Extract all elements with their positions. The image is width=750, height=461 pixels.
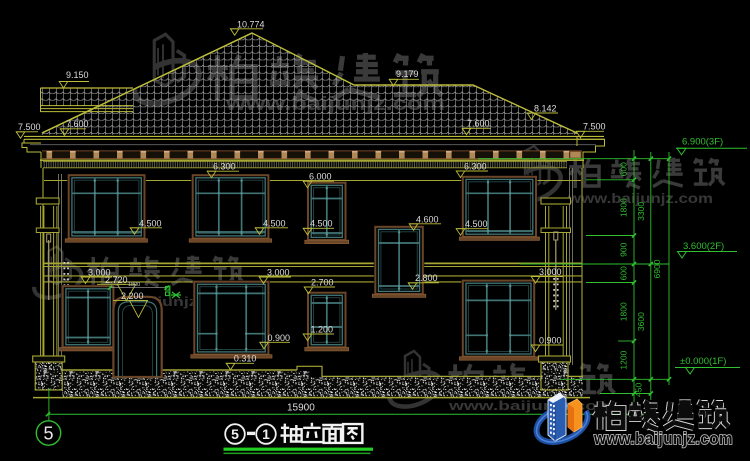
svg-text:1.200: 1.200 xyxy=(311,325,334,335)
svg-text:600: 600 xyxy=(619,266,629,280)
svg-text:8.142: 8.142 xyxy=(534,104,557,114)
svg-text:3600: 3600 xyxy=(636,312,646,331)
svg-text:4.500: 4.500 xyxy=(263,219,286,229)
svg-text:1: 1 xyxy=(262,426,270,442)
svg-text:0.900: 0.900 xyxy=(268,333,291,343)
svg-text:www.baijunjz.com: www.baijunjz.com xyxy=(593,429,733,448)
svg-text:900: 900 xyxy=(619,242,629,256)
svg-text:2.800: 2.800 xyxy=(415,273,438,283)
svg-text:6.300: 6.300 xyxy=(213,162,236,172)
svg-text:1800: 1800 xyxy=(619,198,629,217)
svg-text:±0.000(1F): ±0.000(1F) xyxy=(680,356,726,367)
svg-text:10.774: 10.774 xyxy=(237,20,265,30)
svg-text:6.000: 6.000 xyxy=(309,172,332,182)
svg-text:2.200: 2.200 xyxy=(121,291,144,301)
svg-text:6900: 6900 xyxy=(652,259,662,278)
svg-text:9.179: 9.179 xyxy=(396,69,419,79)
svg-text:1200: 1200 xyxy=(619,350,629,369)
svg-text:4.500: 4.500 xyxy=(139,219,162,229)
svg-text:600: 600 xyxy=(619,162,629,176)
svg-text:4.500: 4.500 xyxy=(465,219,488,229)
svg-text:3.600(2F): 3.600(2F) xyxy=(683,241,724,252)
svg-text:4.500: 4.500 xyxy=(310,219,333,229)
svg-text:7.500: 7.500 xyxy=(18,122,41,132)
svg-text:5: 5 xyxy=(43,424,53,444)
svg-text:4.600: 4.600 xyxy=(416,214,439,224)
svg-text:15900: 15900 xyxy=(287,403,315,414)
svg-text:1800: 1800 xyxy=(619,302,629,321)
svg-text:3300: 3300 xyxy=(636,202,646,221)
svg-text:( ): ( ) xyxy=(698,411,707,418)
svg-text:6.300: 6.300 xyxy=(464,161,487,171)
svg-text:1800: 1800 xyxy=(128,282,140,288)
svg-text:3.000: 3.000 xyxy=(539,267,562,277)
svg-text:2.700: 2.700 xyxy=(311,277,334,287)
svg-text:450: 450 xyxy=(634,383,644,397)
svg-text:7.600: 7.600 xyxy=(66,119,89,129)
svg-text:9.150: 9.150 xyxy=(66,70,89,80)
svg-text:7.600: 7.600 xyxy=(467,119,490,129)
svg-text:0.900: 0.900 xyxy=(539,336,562,346)
svg-text:3.000: 3.000 xyxy=(267,268,290,278)
svg-text:5: 5 xyxy=(231,426,239,442)
svg-text:7.500: 7.500 xyxy=(583,122,606,132)
svg-text:2.720: 2.720 xyxy=(105,275,128,285)
svg-text:6.900(3F): 6.900(3F) xyxy=(682,137,723,148)
svg-text:0.310: 0.310 xyxy=(234,354,257,364)
